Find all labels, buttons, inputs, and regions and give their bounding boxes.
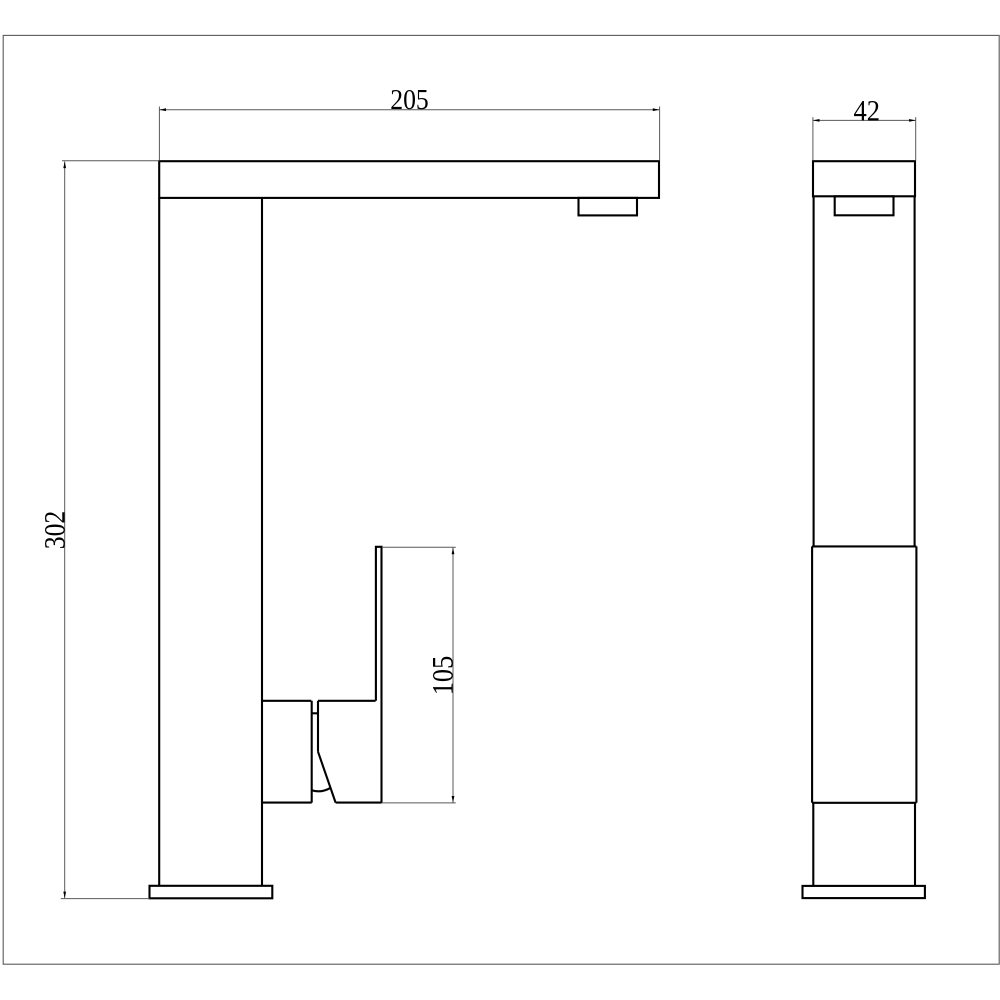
svg-text:42: 42 bbox=[854, 96, 881, 128]
svg-text:205: 205 bbox=[390, 84, 429, 116]
svg-text:105: 105 bbox=[427, 656, 460, 696]
svg-text:302: 302 bbox=[39, 511, 72, 550]
